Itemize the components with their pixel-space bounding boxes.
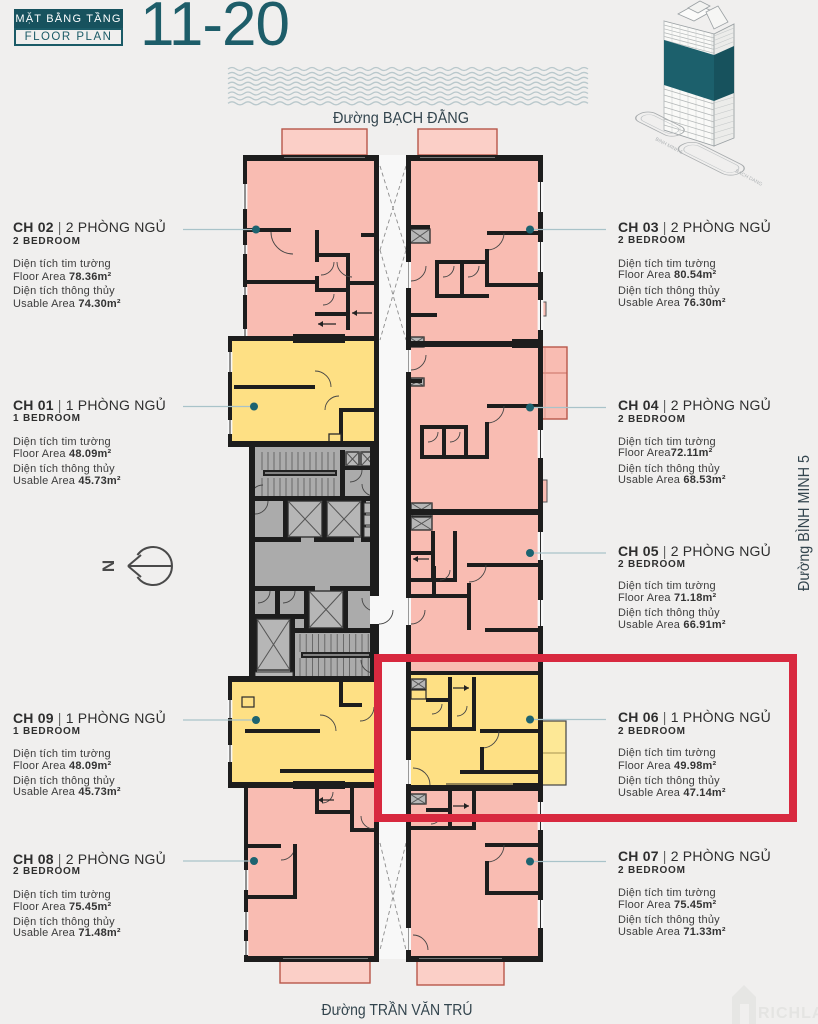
svg-text:Đường BẠCH ĐẰNG: Đường BẠCH ĐẰNG	[333, 109, 469, 127]
svg-text:RICHLAND: RICHLAND	[758, 1005, 818, 1022]
svg-text:Đường TRẦN VĂN TRÚ: Đường TRẦN VĂN TRÚ	[322, 1002, 473, 1019]
svg-text:Đường BÌNH MINH 5: Đường BÌNH MINH 5	[796, 455, 813, 591]
svg-text:BACH DANG: BACH DANG	[734, 168, 763, 187]
